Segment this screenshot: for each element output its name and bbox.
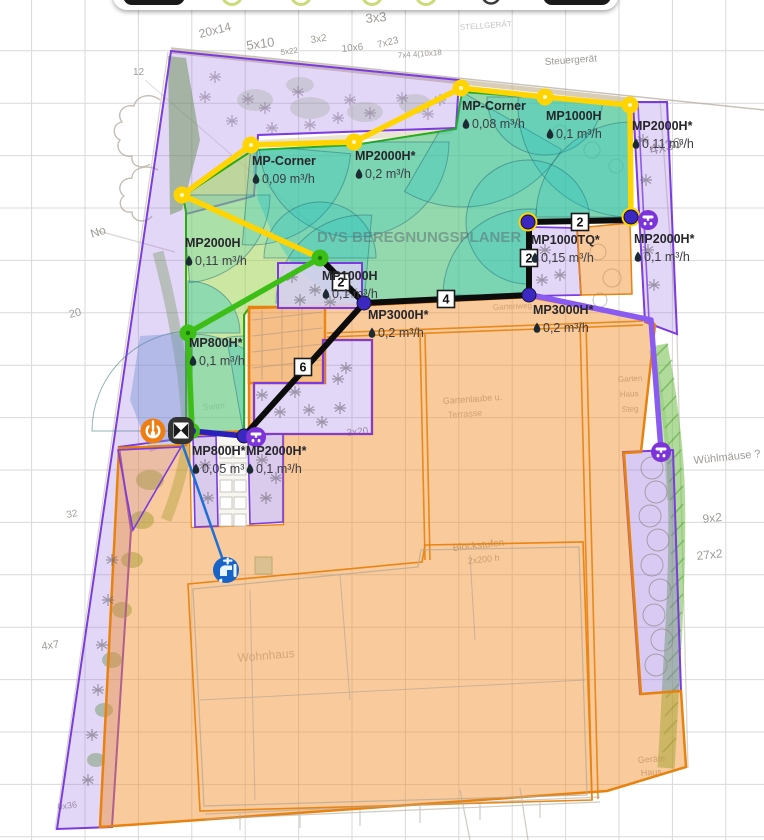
svg-text:MP2000H*: MP2000H* bbox=[634, 232, 695, 246]
svg-text:MP3000H*: MP3000H* bbox=[368, 308, 429, 322]
svg-text:0,1 m³/h: 0,1 m³/h bbox=[256, 462, 302, 476]
svg-text:MP-Corner: MP-Corner bbox=[252, 154, 316, 168]
svg-text:MP2000H*: MP2000H* bbox=[246, 444, 307, 458]
svg-text:MP2000H*: MP2000H* bbox=[632, 119, 693, 133]
svg-text:MP1000H: MP1000H bbox=[546, 109, 602, 123]
svg-text:MP2000H*: MP2000H* bbox=[355, 149, 416, 163]
svg-text:MP800H*: MP800H* bbox=[189, 336, 243, 350]
svg-text:4: 4 bbox=[443, 293, 450, 307]
svg-text:MP2000H: MP2000H bbox=[185, 236, 241, 250]
svg-text:9x2: 9x2 bbox=[702, 510, 723, 526]
svg-text:MP1000TQ*: MP1000TQ* bbox=[531, 233, 600, 247]
svg-text:0,1 m³/h: 0,1 m³/h bbox=[644, 250, 690, 264]
svg-text:0,15 m³/h: 0,15 m³/h bbox=[541, 251, 594, 265]
svg-text:0,08 m³/h: 0,08 m³/h bbox=[472, 117, 525, 131]
svg-text:3x2: 3x2 bbox=[310, 33, 328, 46]
svg-text:0,11 m³/h: 0,11 m³/h bbox=[642, 137, 694, 151]
svg-text:12: 12 bbox=[133, 67, 145, 78]
svg-text:0,09 m³/h: 0,09 m³/h bbox=[262, 172, 315, 186]
svg-text:27x2: 27x2 bbox=[696, 546, 724, 563]
svg-text:MP-Corner: MP-Corner bbox=[462, 99, 526, 113]
svg-text:0,05 m³: 0,05 m³ bbox=[202, 462, 244, 476]
svg-text:MP1000H: MP1000H bbox=[322, 269, 378, 283]
svg-text:0,2 m³/h: 0,2 m³/h bbox=[543, 321, 589, 335]
svg-text:0,1 m³/h: 0,1 m³/h bbox=[199, 354, 245, 368]
svg-text:2: 2 bbox=[526, 252, 533, 266]
svg-text:0,2 m³/h: 0,2 m³/h bbox=[365, 167, 411, 181]
svg-text:0,1 m³/h: 0,1 m³/h bbox=[332, 287, 378, 301]
svg-text:0,1 m³/h: 0,1 m³/h bbox=[556, 127, 602, 141]
svg-text:0,2 m³/h: 0,2 m³/h bbox=[378, 326, 424, 340]
svg-text:3x3: 3x3 bbox=[365, 9, 387, 26]
svg-text:MP800H*: MP800H* bbox=[192, 444, 246, 458]
svg-text:2: 2 bbox=[577, 216, 584, 230]
svg-text:0,11 m³/h: 0,11 m³/h bbox=[195, 254, 247, 268]
svg-text:MP3000H*: MP3000H* bbox=[533, 303, 594, 317]
svg-text:10x6: 10x6 bbox=[341, 42, 364, 55]
svg-text:6: 6 bbox=[300, 361, 307, 375]
svg-text:DVS BEREGNUNGSPLANER: DVS BEREGNUNGSPLANER bbox=[317, 229, 521, 246]
svg-text:4x7: 4x7 bbox=[41, 639, 60, 653]
